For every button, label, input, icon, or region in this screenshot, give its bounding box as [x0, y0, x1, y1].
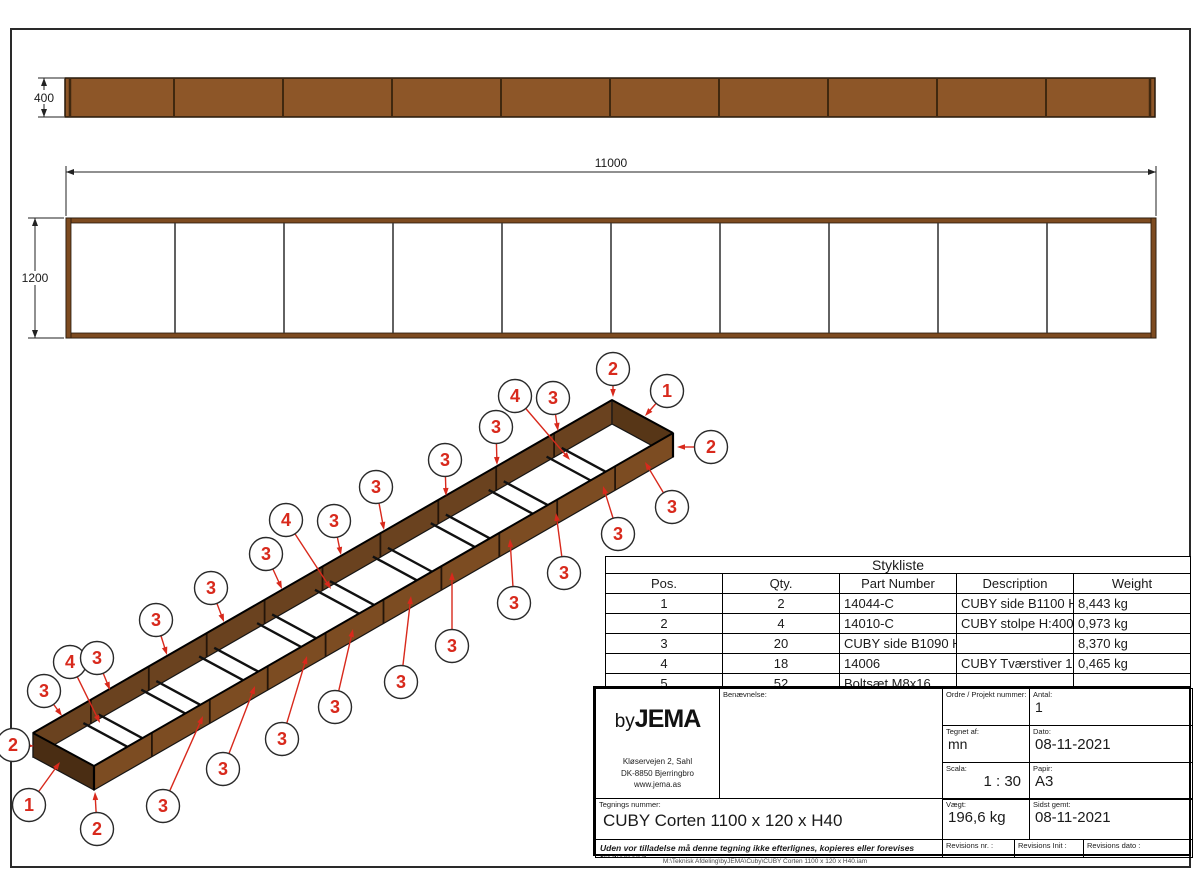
- antal-cell: Antal: 1: [1029, 688, 1193, 726]
- papir-cell: Papir: A3: [1029, 762, 1193, 800]
- parts-list-title-row: Stykliste: [606, 557, 1191, 574]
- balloon-3: 3: [28, 675, 63, 717]
- table-cell: 4: [606, 654, 723, 674]
- balloon-number: 1: [662, 381, 672, 401]
- balloon-number: 3: [206, 578, 216, 598]
- col-header-weight: Weight: [1074, 574, 1191, 594]
- balloon-2: 2: [81, 792, 114, 846]
- file-path: M:\Teknisk Afdeling\byJEMA\Cuby\CUBY Cor…: [560, 858, 970, 865]
- balloon-number: 4: [281, 510, 291, 530]
- table-cell: 3: [606, 634, 723, 654]
- balloon-number: 2: [8, 735, 18, 755]
- balloon-3: 3: [537, 382, 570, 432]
- dim-height-label: 400: [34, 91, 54, 105]
- table-cell: 14044-C: [840, 594, 957, 614]
- balloon-1: 1: [13, 762, 61, 822]
- byjema-logo: byJEMA: [615, 705, 701, 734]
- balloon-2: 2: [0, 729, 34, 762]
- benaevnelse-label: Benævnelse:: [720, 689, 942, 699]
- balloon-number: 3: [396, 672, 406, 692]
- col-header-part-number: Part Number: [840, 574, 957, 594]
- balloon-3: 3: [645, 462, 689, 524]
- table-row: 320CUBY side B1090 H4008,370 kg: [606, 634, 1191, 654]
- antal-value: 1: [1030, 699, 1192, 715]
- vaegt-value: 196,6 kg: [943, 809, 1029, 827]
- ordre-cell: Ordre / Projekt nummer:: [942, 688, 1030, 726]
- cross-braces: [83, 448, 622, 756]
- parts-list-table: Stykliste Pos.Qty.Part NumberDescription…: [605, 556, 1191, 694]
- balloon-number: 3: [667, 497, 677, 517]
- tegnet-af-value: mn: [943, 736, 1029, 752]
- table-cell: CUBY side B1100 H400 Corten: [957, 594, 1074, 614]
- balloon-number: 3: [559, 563, 569, 583]
- table-cell: 8,443 kg: [1074, 594, 1191, 614]
- balloon-number: 3: [440, 450, 450, 470]
- balloon-number: 3: [218, 759, 228, 779]
- balloon-number: 2: [92, 819, 102, 839]
- title-block: byJEMA Kløservejen 2, Sahl DK-8850 Bjerr…: [593, 686, 1191, 856]
- table-row: 2414010-CCUBY stolpe H:400 Corten0,973 k…: [606, 614, 1191, 634]
- balloon-number: 3: [509, 593, 519, 613]
- balloon-3: 3: [81, 642, 114, 691]
- col-header-pos-: Pos.: [606, 574, 723, 594]
- table-cell: CUBY Tværstiver 1200 Galva: [957, 654, 1074, 674]
- drawing-sheet: 4001100012003433334333343212333333333321…: [0, 0, 1200, 882]
- table-cell: 18: [723, 654, 840, 674]
- balloon-3: 3: [195, 572, 228, 623]
- balloon-1: 1: [645, 375, 684, 417]
- balloon-number: 3: [261, 544, 271, 564]
- balloon-number: 3: [548, 388, 558, 408]
- dim-1200: 1200: [19, 218, 64, 338]
- dato-value: 08-11-2021: [1030, 736, 1192, 754]
- logo-cell: byJEMA Kløservejen 2, Sahl DK-8850 Bjerr…: [595, 688, 720, 799]
- balloon-3: 3: [480, 411, 513, 466]
- table-cell: 2: [606, 614, 723, 634]
- dim-length-label: 11000: [595, 156, 628, 170]
- tegnet-af-cell: Tegnet af: mn: [942, 725, 1030, 763]
- table-cell: 8,370 kg: [1074, 634, 1191, 654]
- balloon-number: 3: [158, 796, 168, 816]
- balloon-3: 3: [429, 444, 462, 497]
- scala-cell: Scala: 1 : 30: [942, 762, 1030, 800]
- table-cell: 1: [606, 594, 723, 614]
- dim-11000: 11000: [66, 156, 1156, 216]
- table-cell: 20: [723, 634, 840, 654]
- elevation-view: [65, 78, 1155, 117]
- sidst-gemt-value: 08-11-2021: [1030, 809, 1192, 827]
- disclaimer-cell: Uden vor tilladelse må denne tegning ikk…: [595, 839, 943, 858]
- col-header-description: Description: [957, 574, 1074, 594]
- col-header-qty-: Qty.: [723, 574, 840, 594]
- table-cell: 2: [723, 594, 840, 614]
- table-cell: [957, 634, 1074, 654]
- table-cell: 0,973 kg: [1074, 614, 1191, 634]
- balloon-number: 3: [330, 697, 340, 717]
- table-cell: 14010-C: [840, 614, 957, 634]
- balloon-number: 4: [65, 652, 75, 672]
- balloon-number: 2: [706, 437, 716, 457]
- table-row: 1214044-CCUBY side B1100 H400 Corten8,44…: [606, 594, 1191, 614]
- balloon-number: 3: [329, 511, 339, 531]
- table-cell: 0,465 kg: [1074, 654, 1191, 674]
- balloon-2: 2: [597, 353, 630, 398]
- balloon-3: 3: [602, 486, 635, 551]
- scala-value: 1 : 30: [943, 773, 1029, 791]
- balloon-3: 3: [140, 604, 173, 656]
- revisions-dato-cell: Revisions dato :: [1083, 839, 1193, 858]
- dim-width-label: 1200: [22, 271, 49, 285]
- table-row: 41814006CUBY Tværstiver 1200 Galva0,465 …: [606, 654, 1191, 674]
- balloon-number: 3: [371, 477, 381, 497]
- revisions-nr-cell: Revisions nr. :: [942, 839, 1015, 858]
- balloon-number: 3: [39, 681, 49, 701]
- balloon-number: 3: [92, 648, 102, 668]
- balloon-number: 3: [491, 417, 501, 437]
- table-cell: 14006: [840, 654, 957, 674]
- balloon-2: 2: [677, 431, 728, 464]
- papir-value: A3: [1030, 773, 1192, 791]
- vaegt-cell: Vægt: 196,6 kg: [942, 798, 1030, 840]
- table-cell: 4: [723, 614, 840, 634]
- balloon-number: 3: [277, 729, 287, 749]
- tegnings-nummer-cell: Tegnings nummer: CUBY Corten 1100 x 120 …: [595, 798, 943, 840]
- company-address: Kløservejen 2, Sahl DK-8850 Bjerringbro …: [621, 756, 694, 790]
- parts-list-header-row: Pos.Qty.Part NumberDescriptionWeight: [606, 574, 1191, 594]
- balloon-number: 1: [24, 795, 34, 815]
- plan-view: [66, 218, 1156, 338]
- parts-list-title: Stykliste: [606, 557, 1191, 574]
- balloon-3: 3: [250, 538, 283, 590]
- balloon-3: 3: [360, 471, 393, 531]
- balloon-number: 3: [151, 610, 161, 630]
- revisions-init-cell: Revisions Init :: [1014, 839, 1084, 858]
- table-cell: CUBY stolpe H:400 Corten: [957, 614, 1074, 634]
- table-cell: CUBY side B1090 H400: [840, 634, 957, 654]
- balloon-number: 2: [608, 359, 618, 379]
- balloon-number: 4: [510, 386, 520, 406]
- dim-400: 400: [30, 78, 64, 117]
- balloon-number: 3: [447, 636, 457, 656]
- benaevnelse-cell: Benævnelse:: [719, 688, 943, 799]
- sidst-gemt-cell: Sidst gemt: 08-11-2021: [1029, 798, 1193, 840]
- iso-view: [33, 400, 673, 790]
- dato-cell: Dato: 08-11-2021: [1029, 725, 1193, 763]
- balloon-number: 3: [613, 524, 623, 544]
- balloon-3: 3: [318, 505, 351, 556]
- drawing-number-value: CUBY Corten 1100 x 120 x H40: [596, 809, 942, 831]
